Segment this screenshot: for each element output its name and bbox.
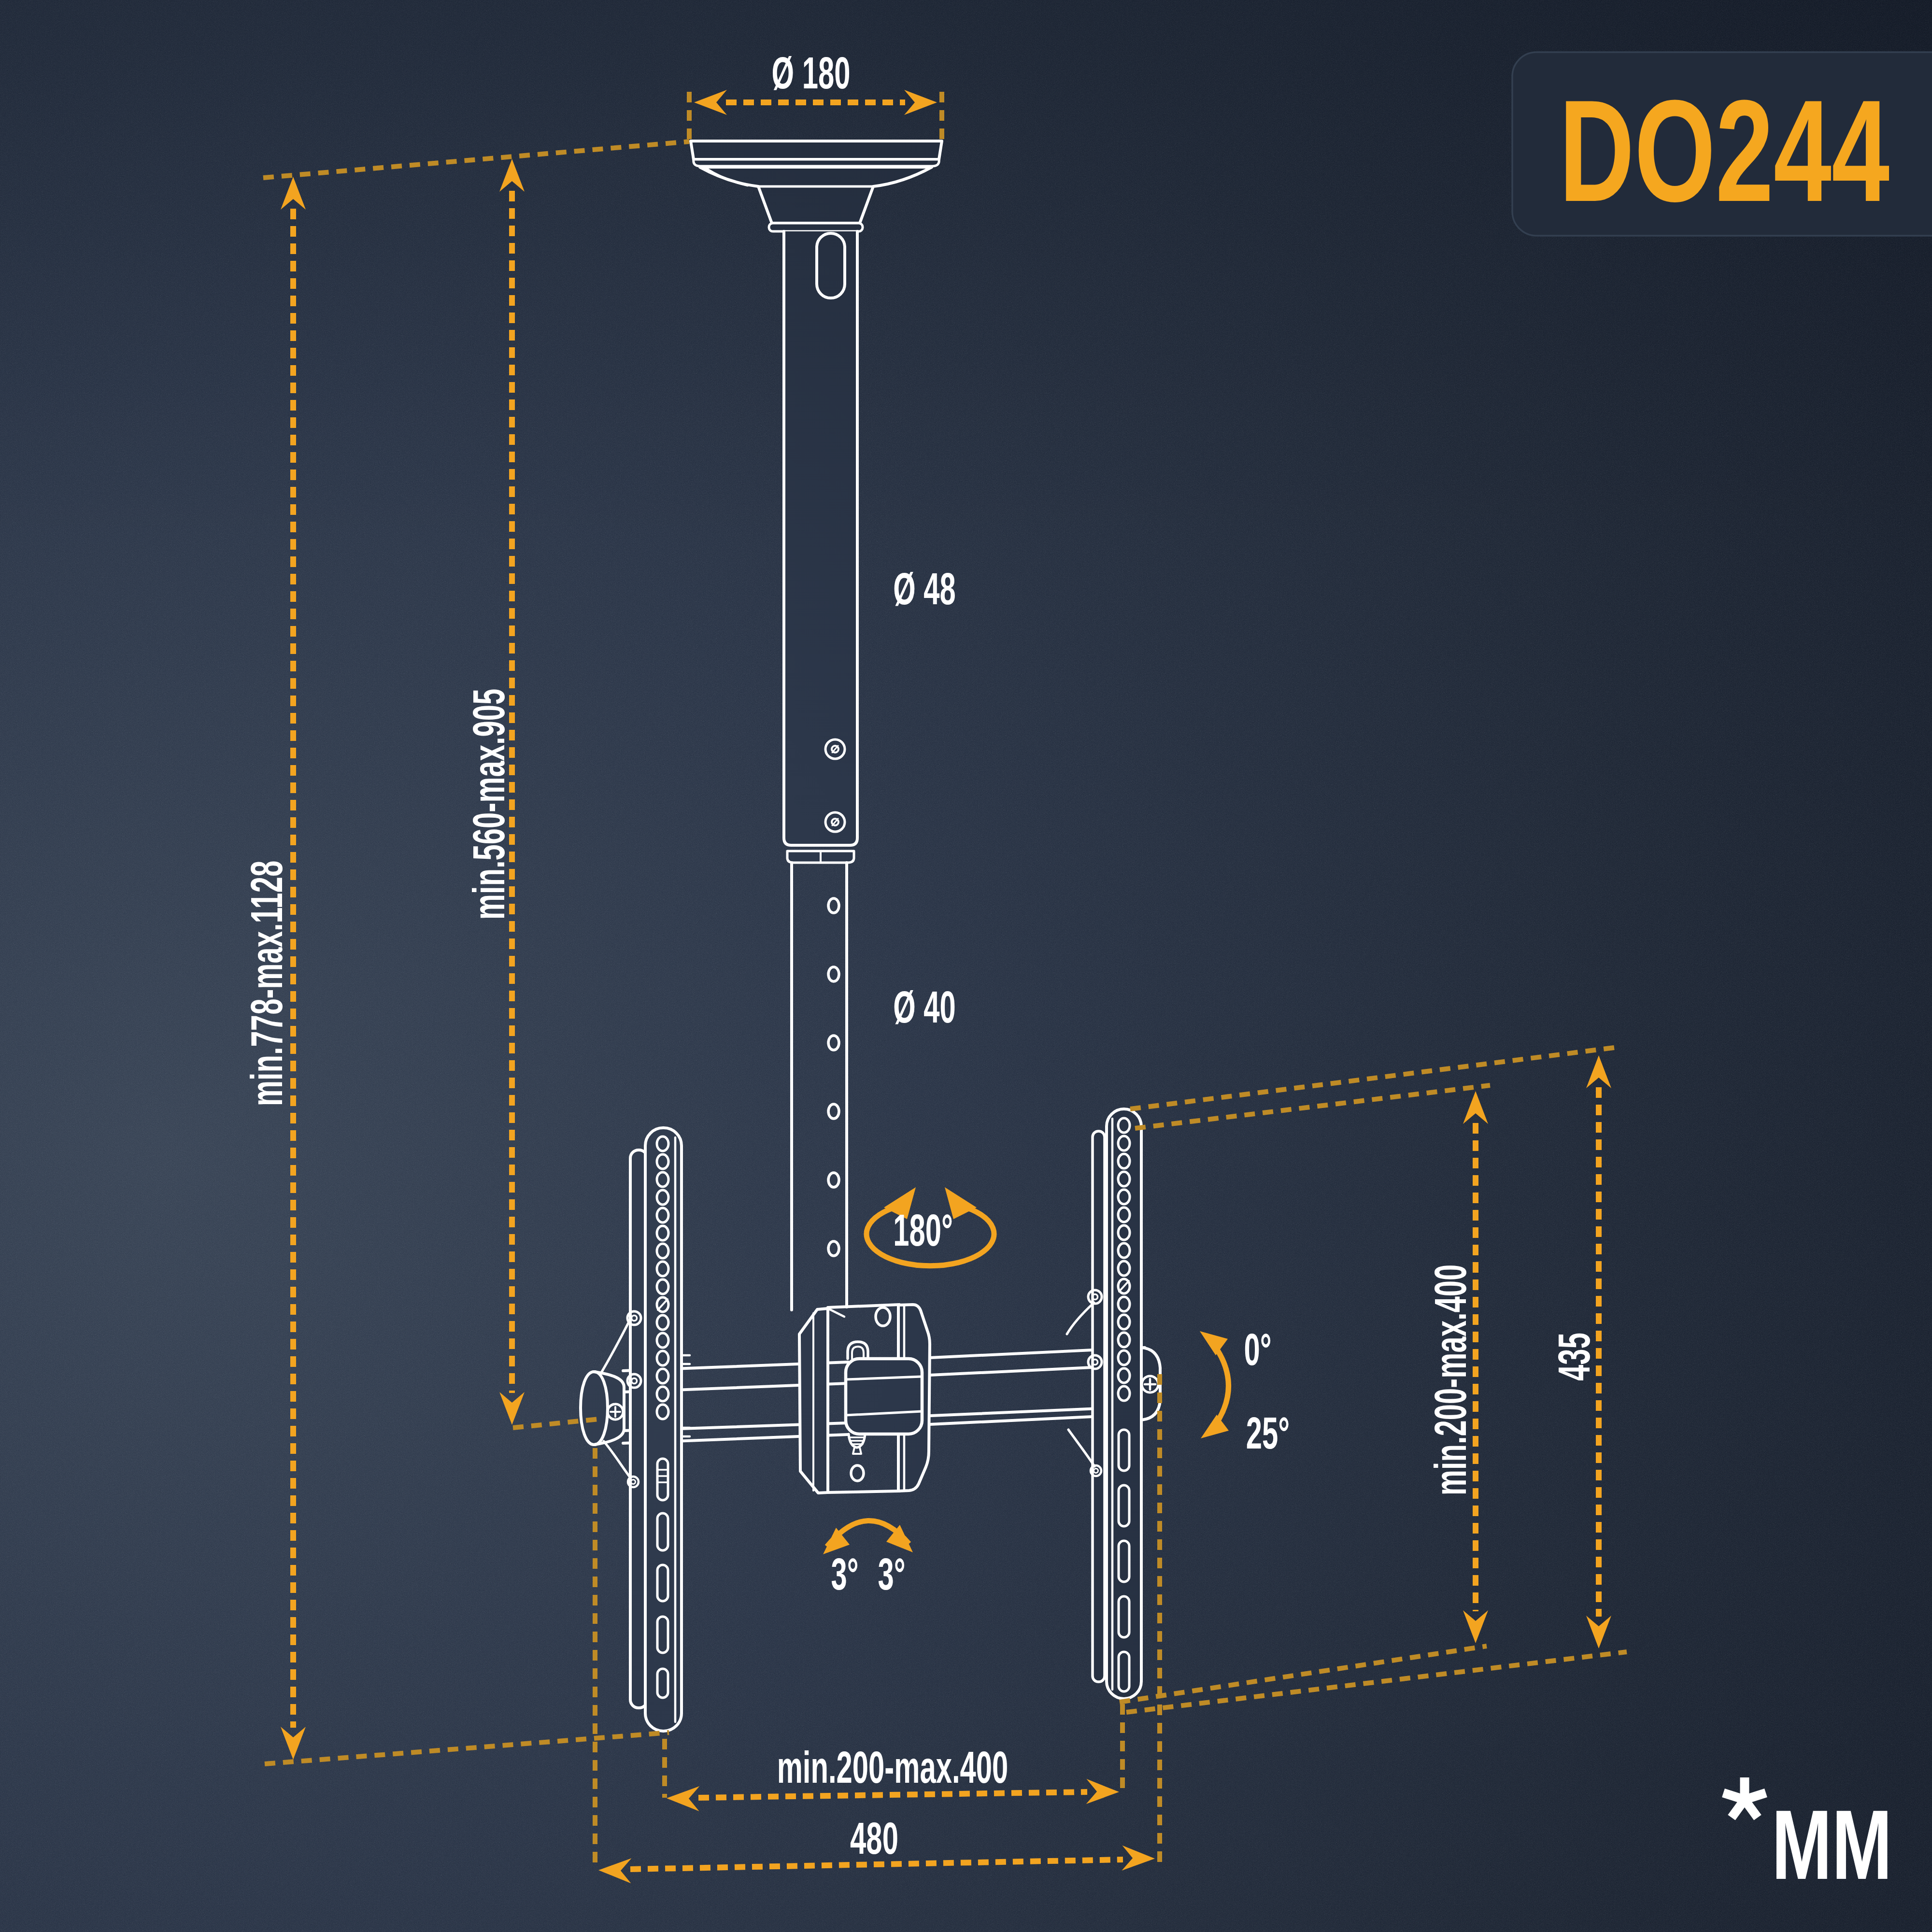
- svg-text:Ø 180: Ø 180: [772, 48, 851, 98]
- svg-text:25°: 25°: [1246, 1408, 1290, 1458]
- svg-text:180°: 180°: [893, 1206, 953, 1255]
- svg-text:480: 480: [850, 1814, 898, 1863]
- svg-text:MM: MM: [1772, 1790, 1892, 1900]
- svg-text:min.560-max.905: min.560-max.905: [464, 689, 513, 920]
- svg-text:Ø 40: Ø 40: [893, 982, 956, 1032]
- svg-text:DO244: DO244: [1559, 70, 1890, 231]
- svg-text:Ø 48: Ø 48: [893, 564, 956, 613]
- svg-text:435: 435: [1549, 1333, 1599, 1381]
- svg-text:min.778-max.1128: min.778-max.1128: [242, 861, 291, 1107]
- svg-text:3°: 3°: [831, 1549, 858, 1599]
- svg-text:0°: 0°: [1244, 1325, 1271, 1374]
- svg-text:min.200-max.400: min.200-max.400: [1426, 1264, 1475, 1496]
- svg-text:min.200-max.400: min.200-max.400: [777, 1743, 1009, 1792]
- svg-text:3°: 3°: [878, 1549, 905, 1599]
